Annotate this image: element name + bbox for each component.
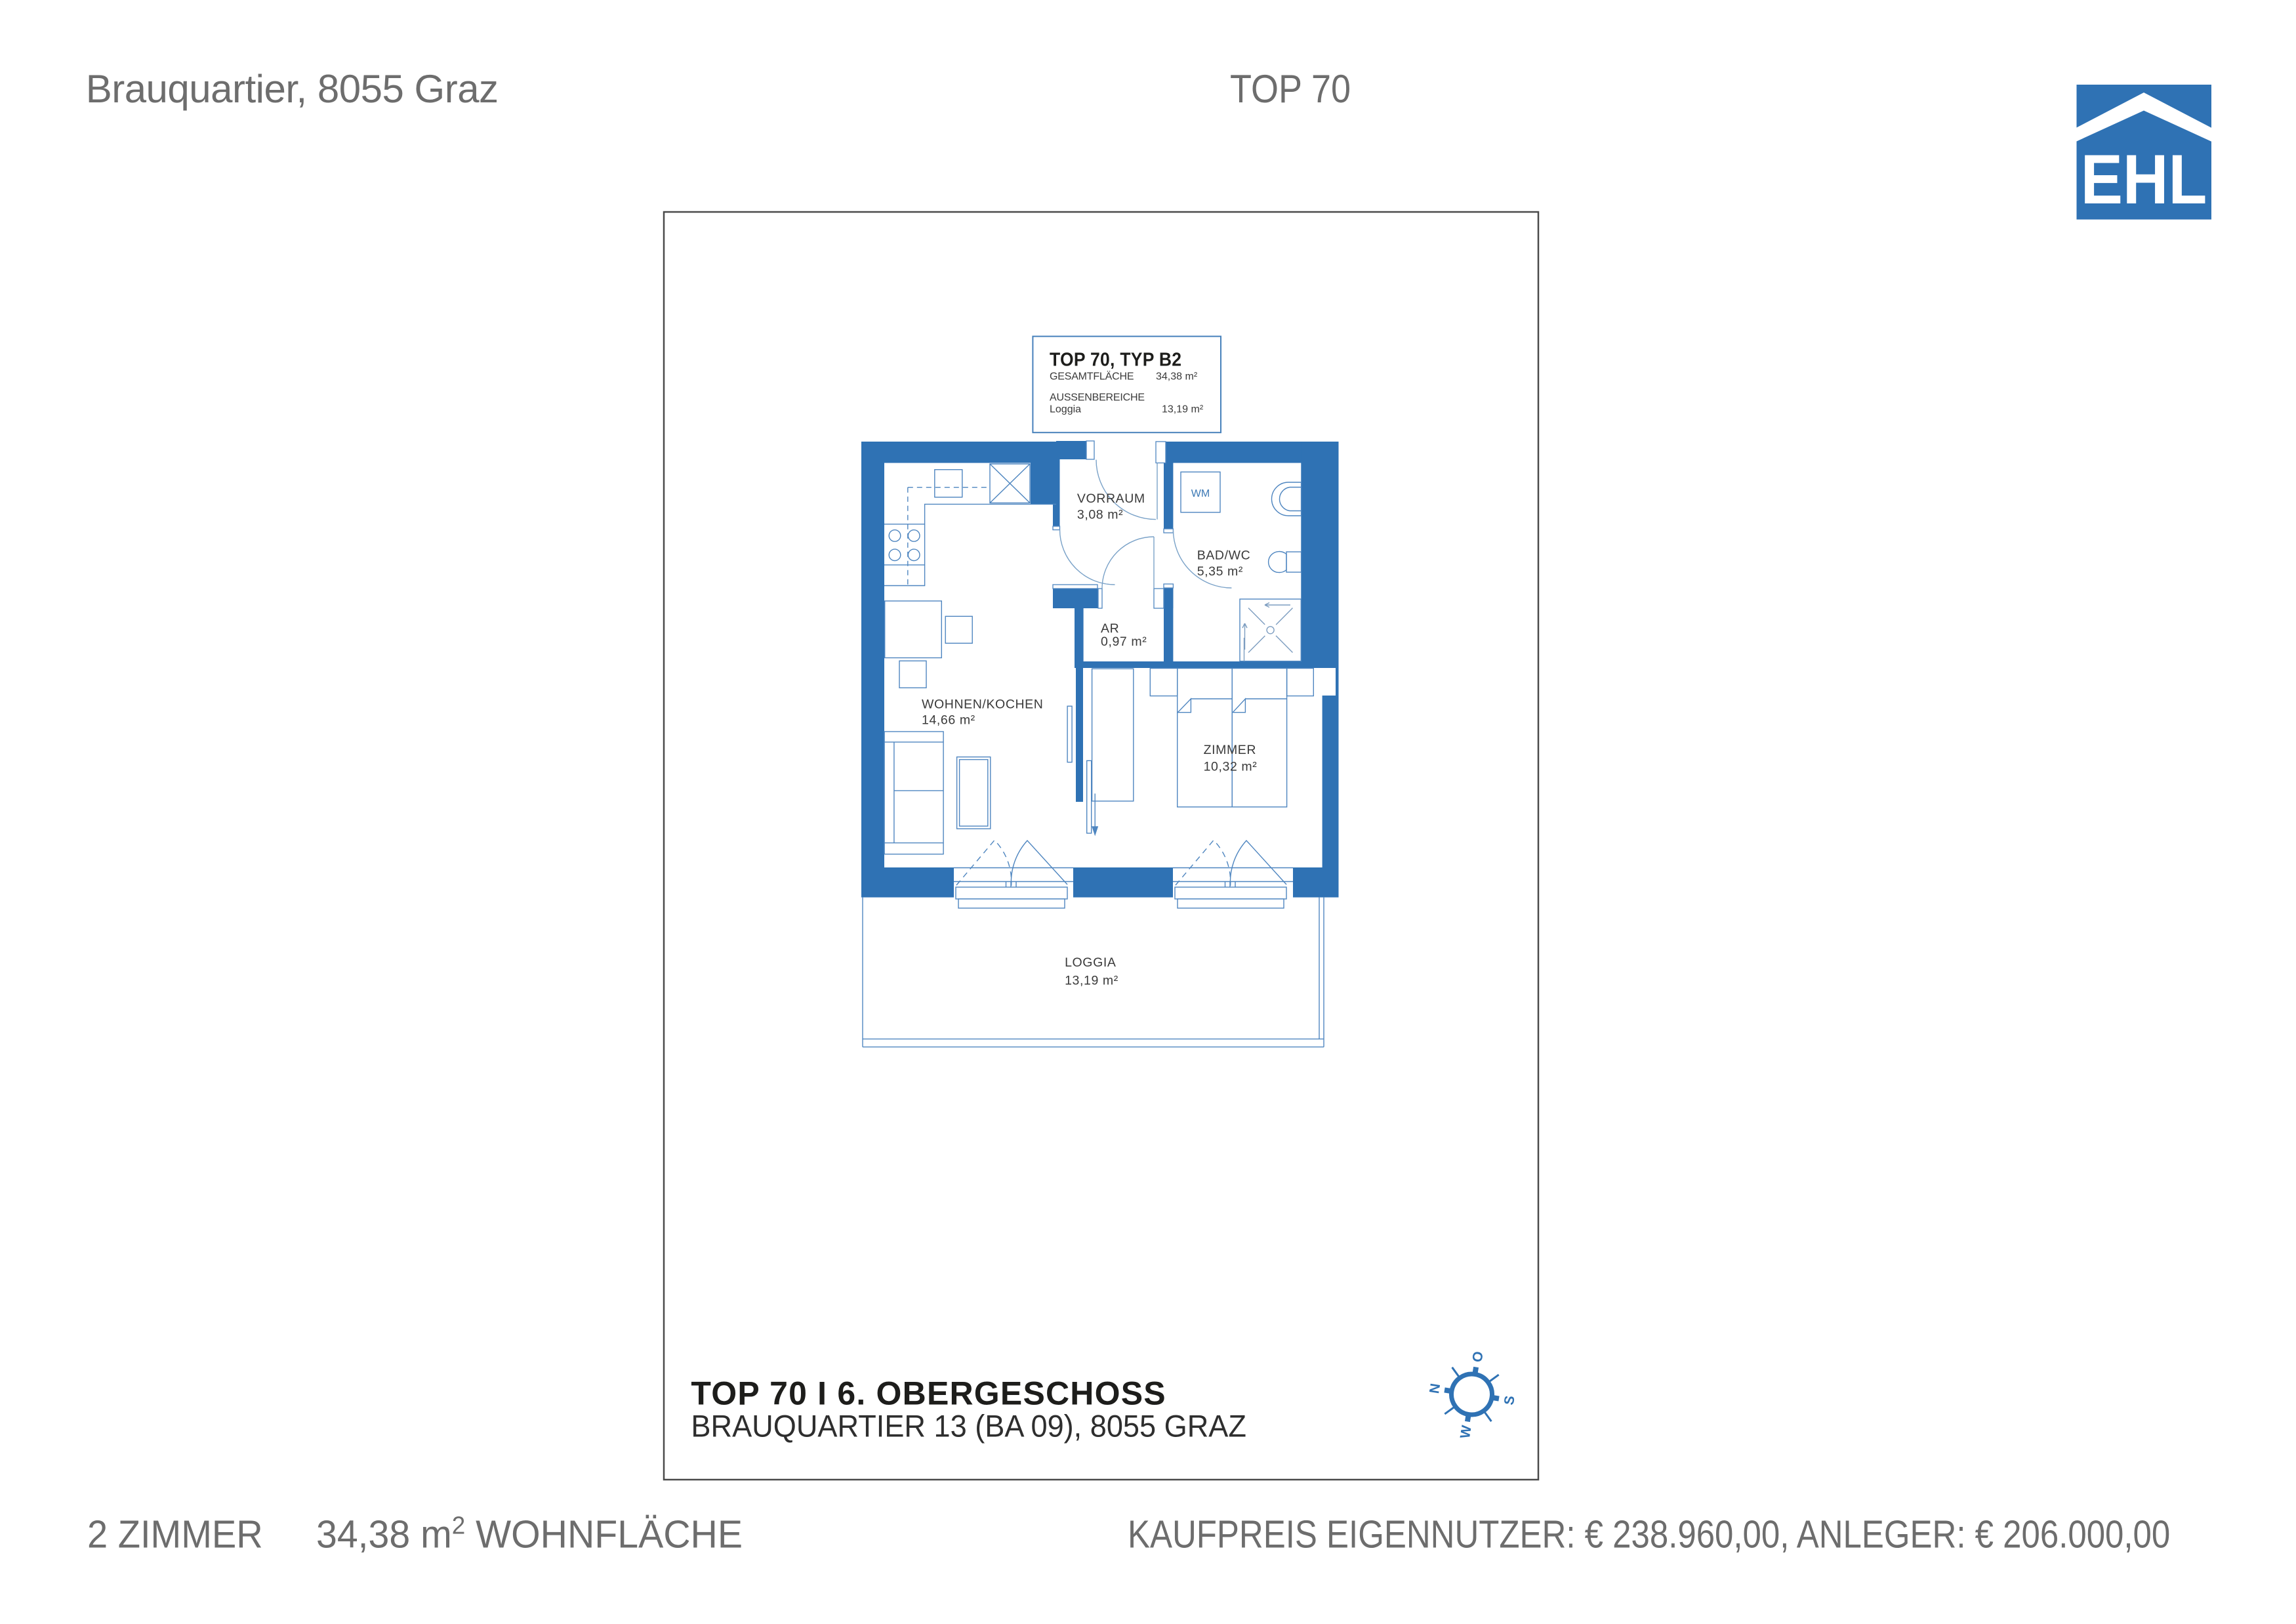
svg-text:WOHNEN/KOCHEN: WOHNEN/KOCHEN (922, 697, 1043, 712)
svg-text:W: W (1458, 1425, 1475, 1440)
svg-text:13,19 m²: 13,19 m² (1065, 973, 1118, 988)
svg-text:EHL: EHL (2081, 140, 2207, 219)
svg-text:3,08 m²: 3,08 m² (1077, 508, 1123, 522)
svg-text:14,66 m²: 14,66 m² (922, 713, 975, 728)
svg-text:BAD/WC: BAD/WC (1197, 549, 1251, 563)
svg-text:13,19 m²: 13,19 m² (1162, 404, 1204, 415)
svg-text:Loggia: Loggia (1050, 404, 1081, 415)
svg-text:34,38 m2 WOHNFLÄCHE: 34,38 m2 WOHNFLÄCHE (316, 1511, 743, 1556)
svg-text:5,35 m²: 5,35 m² (1197, 564, 1243, 579)
svg-text:TOP 70, TYP B2: TOP 70, TYP B2 (1050, 349, 1181, 370)
svg-text:KAUFPREIS EIGENNUTZER: € 238.9: KAUFPREIS EIGENNUTZER: € 238.960,00, ANL… (1128, 1512, 2170, 1556)
svg-text:Brauquartier, 8055 Graz: Brauquartier, 8055 Graz (86, 67, 499, 111)
svg-text:0,97 m²: 0,97 m² (1101, 635, 1147, 649)
svg-text:TOP 70 I 6. OBERGESCHOSS: TOP 70 I 6. OBERGESCHOSS (691, 1375, 1166, 1412)
svg-text:WM: WM (1191, 488, 1210, 499)
svg-text:BRAUQUARTIER 13 (BA 09), 8055: BRAUQUARTIER 13 (BA 09), 8055 GRAZ (691, 1409, 1246, 1444)
svg-text:ZIMMER: ZIMMER (1204, 743, 1257, 757)
svg-text:AUSSENBEREICHE: AUSSENBEREICHE (1050, 392, 1145, 403)
svg-text:GESAMTFLÄCHE: GESAMTFLÄCHE (1050, 371, 1134, 383)
svg-text:34,38 m²: 34,38 m² (1156, 371, 1198, 383)
svg-text:TOP 70: TOP 70 (1230, 67, 1351, 111)
svg-text:AR: AR (1101, 621, 1119, 636)
svg-text:10,32 m²: 10,32 m² (1204, 759, 1258, 774)
svg-text:2 ZIMMER: 2 ZIMMER (87, 1513, 263, 1556)
svg-text:VORRAUM: VORRAUM (1077, 491, 1145, 506)
svg-text:LOGGIA: LOGGIA (1065, 955, 1116, 970)
